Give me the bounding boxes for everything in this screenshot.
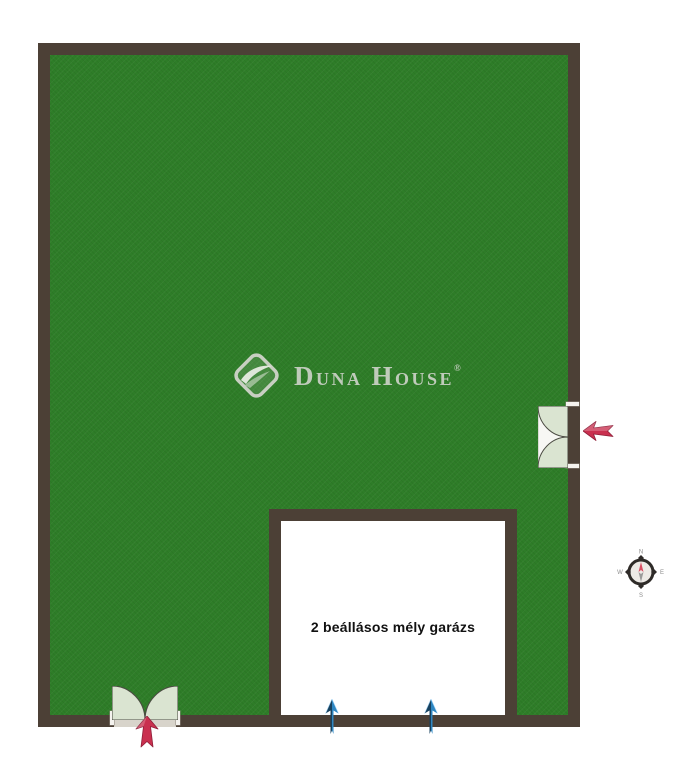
entrance-arrow-south-icon [133, 716, 161, 749]
garage-ramp-arrow-icon [422, 699, 440, 735]
compass-west-label: W [617, 570, 623, 576]
brand-letter-d: D [294, 361, 316, 391]
entrance-arrow-east-icon [583, 420, 614, 442]
floorplan-canvas: 2 beállásos mély garázs DUNAHOUSE® [0, 0, 694, 768]
double-door-south-icon [112, 686, 178, 720]
garage-room: 2 beállásos mély garázs [269, 509, 517, 715]
garage-label: 2 beállásos mély garázs [311, 601, 475, 635]
brand-letter-h: H [372, 361, 396, 391]
compass-east-label: E [660, 570, 664, 576]
compass-south-label: S [639, 593, 643, 599]
registered-mark: ® [454, 363, 461, 373]
brand-text: DUNAHOUSE® [294, 361, 461, 392]
compass-rose-icon: N E S W [617, 547, 665, 599]
compass-north-label: N [639, 550, 643, 556]
garage-ramp-arrow-icon [323, 699, 341, 735]
watermark-logo: DUNAHOUSE® [228, 350, 461, 402]
duna-house-diamond-icon [228, 350, 284, 402]
double-door-east-icon [538, 406, 568, 468]
